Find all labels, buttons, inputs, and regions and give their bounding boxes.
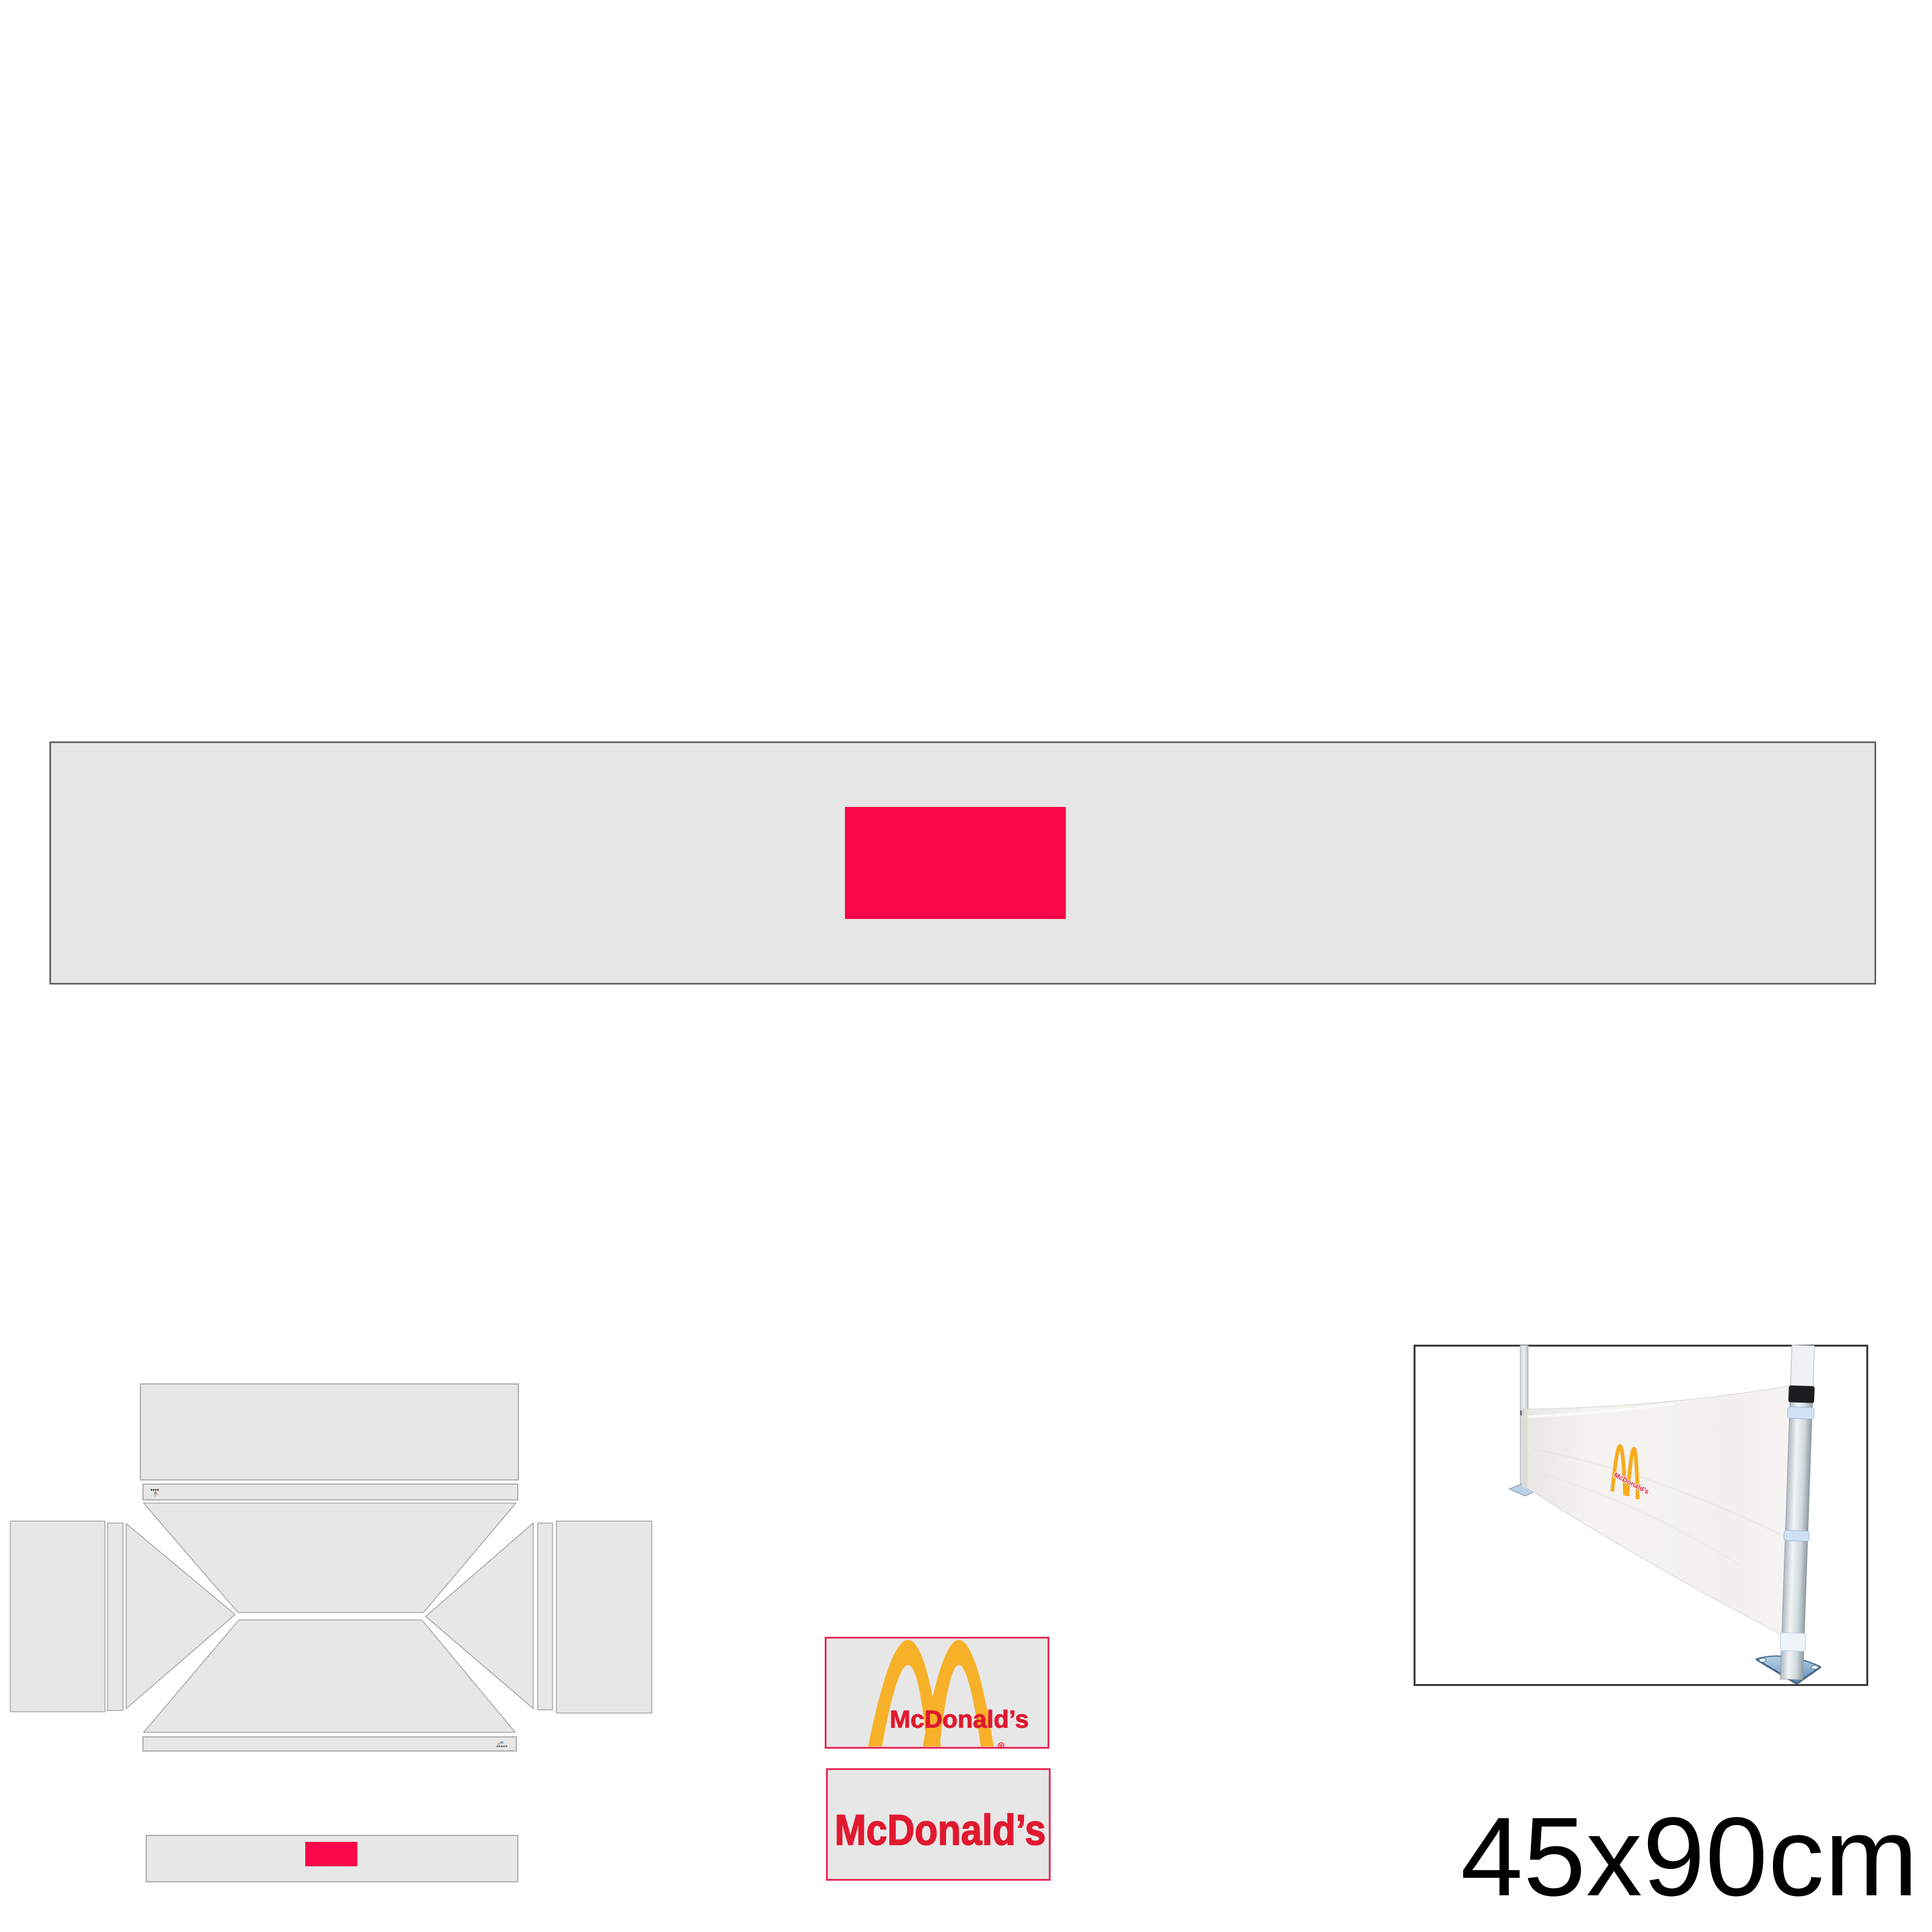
svg-text:45x90cm: 45x90cm bbox=[1461, 1794, 1918, 1919]
svg-text:R: R bbox=[999, 1745, 1003, 1749]
svg-text:McDonald’s: McDonald’s bbox=[835, 1806, 1046, 1855]
svg-text:McDonald’s: McDonald’s bbox=[890, 1706, 1029, 1733]
